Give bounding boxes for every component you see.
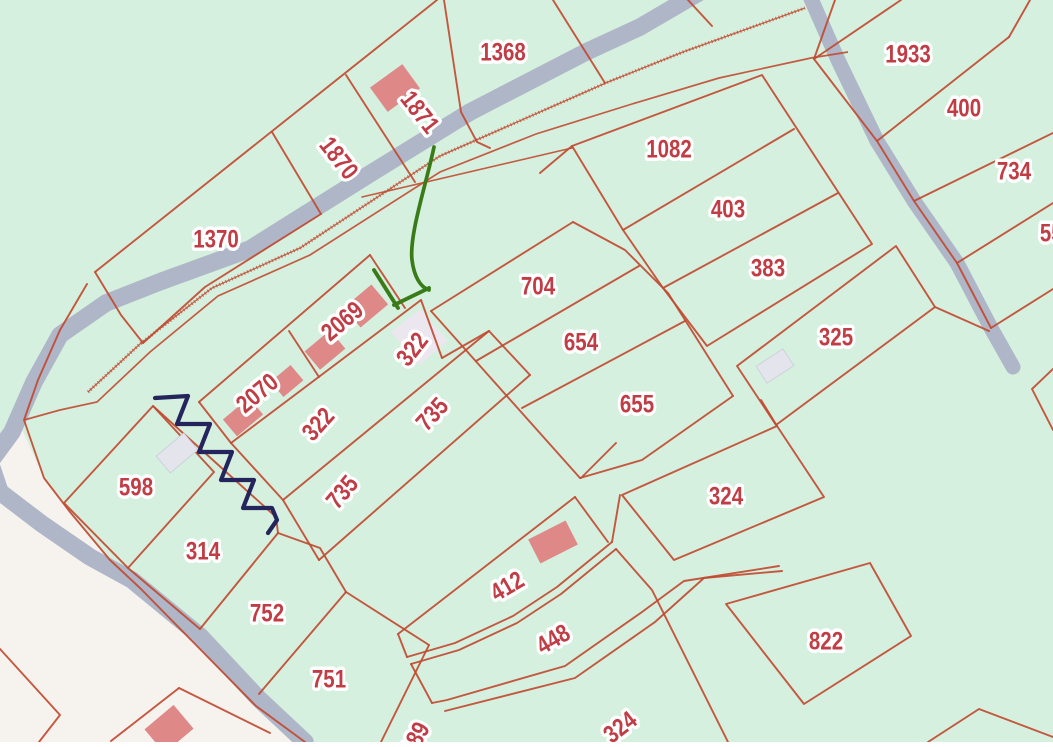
svg-text:654: 654 bbox=[564, 329, 598, 357]
svg-text:704: 704 bbox=[521, 273, 555, 301]
svg-text:655: 655 bbox=[620, 391, 654, 419]
svg-text:598: 598 bbox=[119, 474, 153, 502]
svg-text:1082: 1082 bbox=[646, 136, 692, 164]
svg-text:751: 751 bbox=[312, 666, 346, 694]
svg-text:1933: 1933 bbox=[885, 41, 931, 69]
svg-text:1370: 1370 bbox=[193, 226, 239, 254]
svg-text:734: 734 bbox=[997, 158, 1031, 186]
svg-text:325: 325 bbox=[819, 324, 853, 352]
svg-text:1368: 1368 bbox=[480, 39, 526, 67]
svg-text:403: 403 bbox=[711, 196, 745, 224]
svg-text:556: 556 bbox=[1040, 220, 1053, 248]
svg-text:383: 383 bbox=[751, 255, 785, 283]
svg-text:314: 314 bbox=[186, 538, 220, 566]
svg-text:752: 752 bbox=[250, 600, 284, 628]
svg-text:822: 822 bbox=[809, 628, 843, 656]
svg-text:324: 324 bbox=[709, 483, 743, 511]
svg-text:400: 400 bbox=[947, 95, 981, 123]
